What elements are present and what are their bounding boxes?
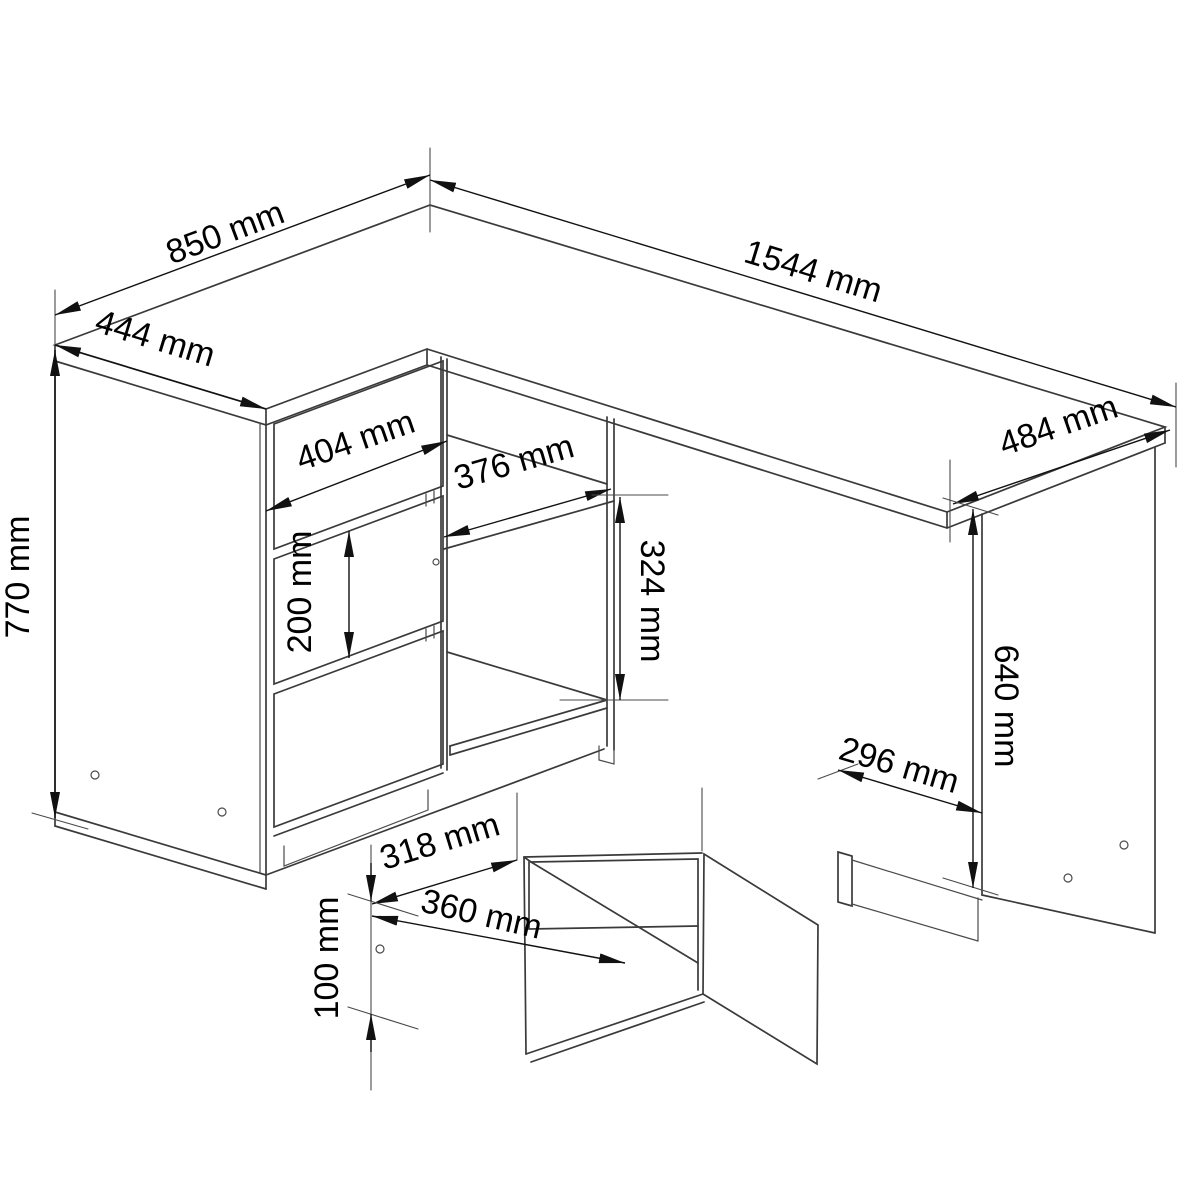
dim-label-318: 318 mm	[375, 805, 504, 877]
dim-label-376: 376 mm	[450, 427, 579, 497]
cam-hole	[218, 808, 226, 816]
right-cabinet-plinth-bottom	[852, 904, 978, 941]
dimension-200: 200 mm	[281, 531, 349, 658]
extension-line	[943, 878, 998, 895]
technical-drawing: 850 mm 444 mm 1544 mm 484 mm 770 mm 404 …	[0, 0, 1200, 1200]
cam-hole	[433, 559, 439, 565]
dim-label-100: 100 mm	[308, 897, 346, 1020]
left-cabinet-bottom-edge	[55, 812, 266, 875]
dim-label-404: 404 mm	[291, 403, 420, 479]
box-back-top-outer	[524, 853, 702, 857]
shelf-thickness-edge	[450, 708, 607, 755]
box-bottom-front-edge	[526, 994, 703, 1054]
box-back-top-inner	[531, 859, 698, 862]
box-bottom-back-edge	[529, 926, 698, 929]
extension-line	[32, 813, 88, 829]
dimension-100: 100 mm	[308, 863, 418, 1052]
dimension-640: 640 mm	[943, 498, 1025, 895]
box-left-outer-edge	[524, 857, 526, 1054]
dim-label-324: 324 mm	[633, 540, 671, 663]
dimension-360: 360 mm	[372, 882, 625, 963]
box-side-top-edge	[531, 862, 698, 963]
niche-top-front-edge	[444, 501, 614, 549]
box-front-panel	[703, 854, 818, 1064]
dimension-296: 296 mm	[818, 730, 982, 813]
partition-foot	[599, 746, 614, 764]
dim-label-640: 640 mm	[987, 645, 1025, 768]
dim-label-296: 296 mm	[835, 730, 964, 801]
dim-label-200: 200 mm	[281, 531, 319, 654]
cabinet-base-line	[274, 773, 443, 836]
dimension-line	[444, 489, 611, 537]
right-cabinet-foot	[838, 852, 852, 906]
cam-hole	[1064, 874, 1072, 882]
cam-hole	[376, 945, 384, 953]
drawer-front-bottom	[274, 631, 443, 827]
left-cabinet-plinth-edge	[55, 826, 266, 889]
shelf-front-edge	[450, 700, 607, 746]
extension-line	[348, 894, 418, 916]
dim-label-850: 850 mm	[161, 193, 289, 272]
right-cabinet-bottom-edge	[982, 895, 1155, 933]
dim-label-1544: 1544 mm	[740, 233, 887, 311]
dim-label-444: 444 mm	[91, 302, 220, 374]
right-cabinet-plinth-top	[852, 860, 982, 900]
dimension-line	[430, 180, 1176, 407]
extension-line	[943, 498, 998, 515]
dimension-770: 770 mm	[0, 350, 88, 829]
shelf-back-edge	[447, 652, 607, 700]
cam-hole	[1120, 841, 1128, 849]
dimension-324: 324 mm	[560, 495, 671, 700]
dimension-484: 484 mm	[950, 388, 1170, 542]
box-bottom-thickness-edge	[531, 1002, 704, 1062]
cam-hole	[91, 771, 99, 779]
drawing-canvas: 850 mm 444 mm 1544 mm 484 mm 770 mm 404 …	[0, 0, 1200, 1200]
dimension-376: 376 mm	[444, 427, 611, 537]
dim-label-770: 770 mm	[0, 516, 37, 639]
extension-line	[348, 1007, 418, 1029]
